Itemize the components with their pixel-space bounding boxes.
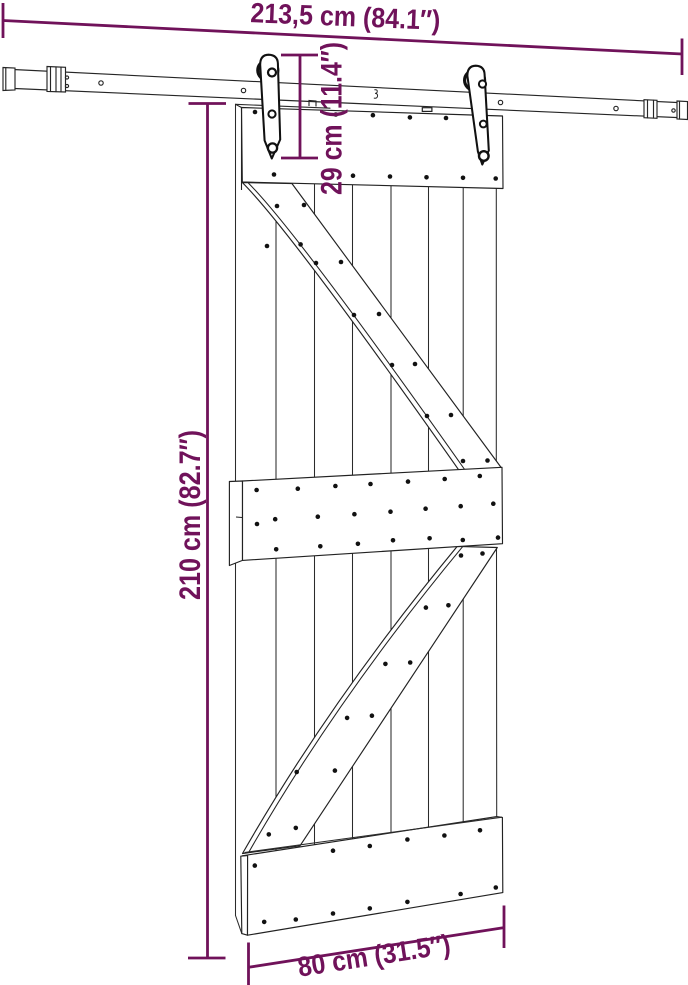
svg-text:29 cm (11.4″): 29 cm (11.4″) <box>316 42 349 195</box>
svg-text:210 cm (82.7″): 210 cm (82.7″) <box>174 430 207 600</box>
